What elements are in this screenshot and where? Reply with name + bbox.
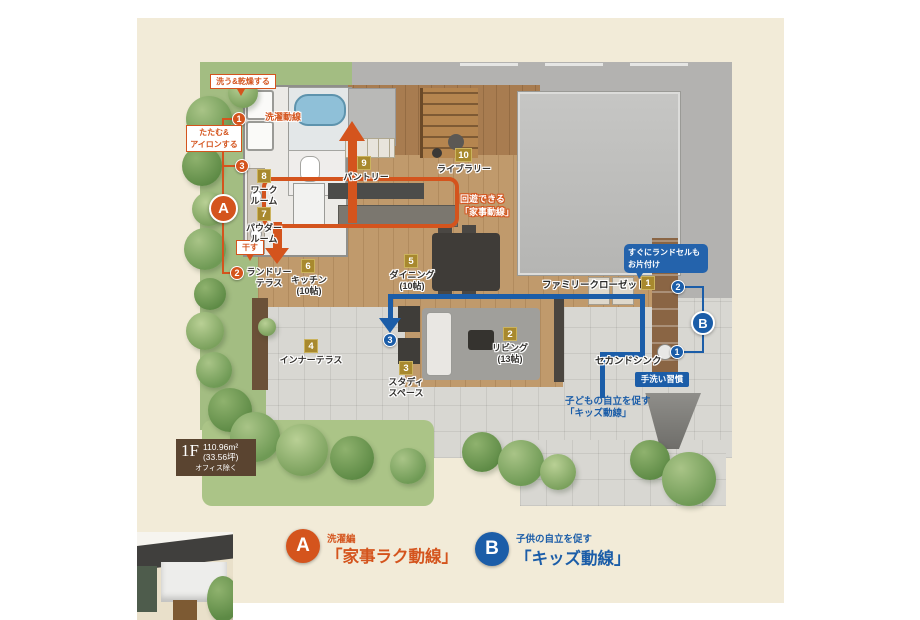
- room-number-dining: 5: [404, 254, 418, 268]
- wash-dry-callout: 洗う&乾燥する: [210, 74, 276, 89]
- room-label-work: ワークルーム: [242, 185, 286, 207]
- tree: [196, 352, 232, 388]
- room-number-pantry: 9: [357, 156, 371, 170]
- terrace-plant: [258, 318, 276, 336]
- tree: [194, 278, 226, 310]
- dining-table: [432, 233, 500, 291]
- randoseru-bubble: すぐにランドセルも お片付け: [624, 244, 708, 273]
- legend-b-badge: B: [475, 532, 509, 566]
- laundry-flow-label: 洗濯動線: [265, 110, 301, 123]
- floor-label: 1F: [181, 442, 199, 459]
- route-b-step-1-marker: 1: [670, 345, 684, 359]
- fold-iron-callout: たたむ& アイロンする: [186, 125, 242, 152]
- dining-chair: [462, 225, 476, 233]
- room-number-kitchen: 6: [301, 259, 315, 273]
- legend-b-tag: 子供の自立を促す: [516, 531, 592, 545]
- dryer: [246, 121, 274, 151]
- route-b-bracket: [684, 286, 704, 288]
- dry-callout-tail: [246, 254, 254, 261]
- room-label-pantry: パントリー: [338, 172, 394, 183]
- route-a-step-3-marker: 3: [235, 159, 249, 173]
- room-label-library: ライブラリー: [434, 164, 494, 175]
- route-a-map-badge: A: [209, 194, 238, 223]
- tree: [330, 436, 374, 480]
- parking-line: [545, 63, 603, 66]
- tree: [182, 146, 222, 186]
- photo-window: [137, 566, 157, 612]
- route-a-step-1-marker: 1: [232, 112, 246, 126]
- room-number-study: 3: [399, 361, 413, 375]
- room-label-family-closet: ファミリークローゼット: [542, 277, 647, 291]
- library-table: [432, 148, 442, 158]
- route-b-line: [388, 294, 393, 320]
- route-b-line: [640, 296, 645, 357]
- room-label-inner-terrace: インナーテラス: [266, 355, 356, 366]
- tree: [390, 448, 426, 484]
- laundry-arrow-up-head: [339, 121, 365, 141]
- photo-bush: [207, 576, 233, 620]
- floor-area-note: オフィス除く: [181, 463, 251, 473]
- tv-wall: [554, 296, 564, 382]
- room-label-study: スタディスペース: [380, 377, 432, 399]
- tree: [498, 440, 544, 486]
- room-number-inner-terrace: 4: [304, 339, 318, 353]
- parking-line: [630, 63, 688, 66]
- room-label-living: リビング(13帖): [484, 343, 536, 365]
- floor-area-box: 1F 110.96m² (33.56坪) オフィス除く: [176, 439, 256, 476]
- room-label-dining: ダイニング(10帖): [386, 270, 438, 292]
- route-b-line: [388, 294, 645, 299]
- floor-area-tsubo: (33.56坪): [203, 452, 238, 462]
- room-number-work: 8: [257, 169, 271, 183]
- kids-route-note: 子どもの自立を促す 「キッズ動線」: [565, 396, 651, 421]
- room-label-laundry-terrace: ランドリー テラス: [242, 267, 296, 289]
- route-b-step-3-marker: 3: [383, 333, 397, 347]
- parking-line: [460, 63, 518, 66]
- tree: [184, 228, 226, 270]
- route-b-step-2-marker: 2: [671, 280, 685, 294]
- legend-a-title: 「家事ラク動線」: [326, 543, 458, 567]
- floor-area-m2: 110.96m²: [203, 442, 238, 452]
- tree: [276, 424, 328, 476]
- tree: [540, 454, 576, 490]
- floorplan-page: A 1 3 2 洗う&乾燥する たたむ& アイロンする 干す 洗濯動線 回遊でき…: [0, 0, 920, 620]
- legend-b-title: 「キッズ動線」: [515, 545, 631, 569]
- route-b-arrow-head: [379, 318, 401, 333]
- room-number-family-closet: 1: [641, 276, 655, 290]
- tree: [462, 432, 502, 472]
- room-number-powder: 7: [257, 207, 271, 221]
- tree: [186, 312, 224, 350]
- room-number-living: 2: [503, 327, 517, 341]
- photo-door: [173, 600, 197, 620]
- study-desk: [398, 306, 420, 332]
- room-number-library: 10: [455, 148, 472, 162]
- second-sink-label: セカンドシンク: [595, 353, 662, 367]
- room-label-powder: パウダールーム: [238, 223, 290, 245]
- legend-a-badge: A: [286, 529, 320, 563]
- dry-arrow-down-head: [265, 248, 289, 264]
- loop-label: 回遊できる 「家事動線」: [460, 193, 514, 219]
- wash-dry-callout-tail: [237, 89, 245, 96]
- route-b-map-badge: B: [691, 311, 715, 335]
- handwash-habit-label: 手洗い習慣: [635, 372, 689, 387]
- route-b-bracket: [684, 351, 704, 353]
- terrace-deck-edge: [252, 298, 268, 390]
- sofa: [426, 312, 452, 376]
- tree: [662, 452, 716, 506]
- route-a-loop: [262, 177, 459, 228]
- house-photo: [137, 532, 233, 620]
